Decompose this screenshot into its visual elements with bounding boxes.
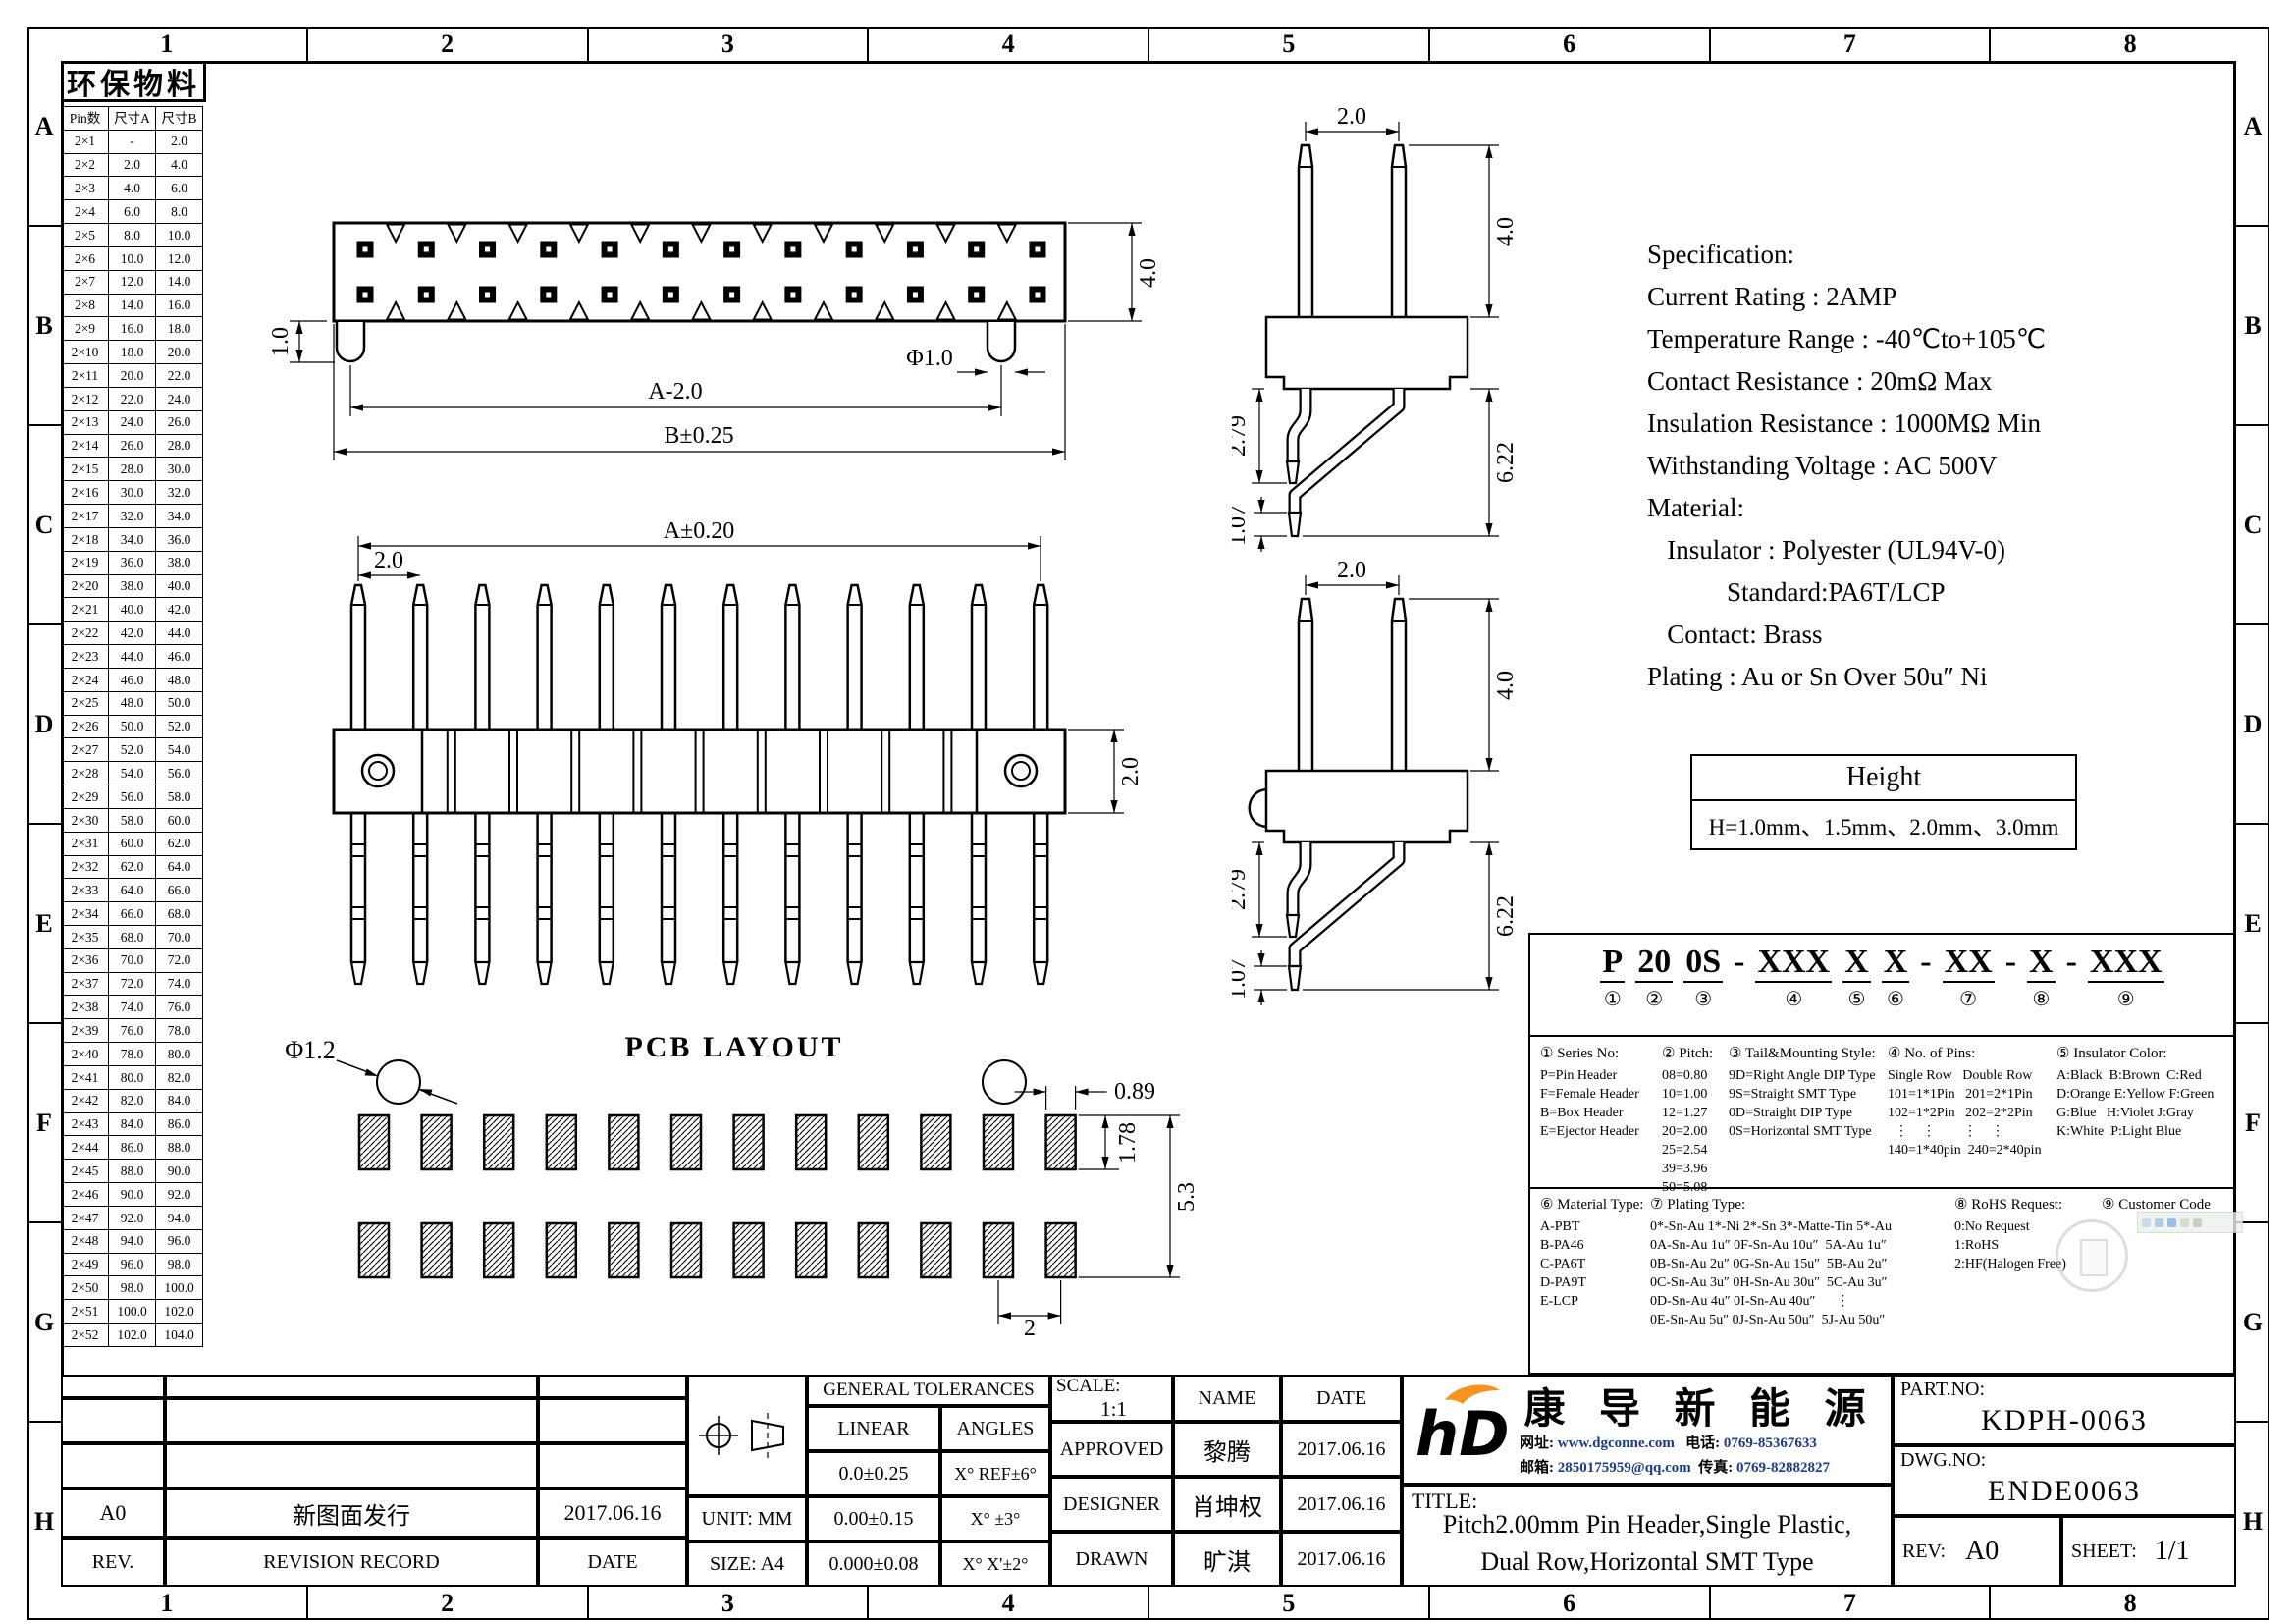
- height-table-title: Height: [1692, 756, 2075, 801]
- grid-ref-label: F: [27, 1024, 61, 1223]
- sheet-cell: SHEET: 1/1: [2061, 1516, 2236, 1587]
- table-row: 2×2650.052.0: [62, 715, 203, 738]
- grid-ref-label: C: [27, 426, 61, 625]
- part-code-segment: XXX⑨: [2088, 943, 2164, 1010]
- unit-label: UNIT: MM: [687, 1496, 807, 1542]
- table-row: 2×4690.092.0: [62, 1183, 203, 1207]
- ordering-info-box: P①20②0S③-XXX④X⑤X⑥-XX⑦-X⑧-XXX⑨ ① Series N…: [1528, 933, 2236, 1375]
- table-row: 2×3262.064.0: [62, 855, 203, 879]
- ordering-section-title: ⑧ RoHS Request:: [1954, 1196, 2098, 1215]
- svg-text:hD: hD: [1415, 1398, 1510, 1470]
- rev-table-cell: [538, 1375, 687, 1398]
- approved-name: 黎腾: [1173, 1422, 1281, 1477]
- table-row: 2×3874.076.0: [62, 996, 203, 1019]
- grid-ref-label: 1: [27, 27, 308, 61]
- table-row: 2×1120.022.0: [62, 364, 203, 388]
- revision-rev: A0: [61, 1489, 165, 1538]
- table-row: 2×1324.026.0: [62, 410, 203, 434]
- table-row: 2×1222.024.0: [62, 387, 203, 410]
- pin-dimension-table: Pin数 尺寸A 尺寸B 2×1-2.02×22.04.02×34.06.02×…: [61, 106, 203, 1347]
- part-code-hyphen: -: [1734, 943, 1744, 981]
- grid-ref-label: 2: [308, 27, 589, 61]
- ordering-section-title: ④ No. of Pins:: [1888, 1045, 2053, 1063]
- table-row: 2×2854.056.0: [62, 762, 203, 785]
- table-row: 2×4384.086.0: [62, 1112, 203, 1136]
- ordering-section-title: ① Series No:: [1540, 1045, 1660, 1063]
- ordering-section: ① Series No:P=Pin HeaderF=Female HeaderB…: [1540, 1045, 1660, 1141]
- approved-date: 2017.06.16: [1281, 1422, 1402, 1477]
- grid-ref-label: 1: [27, 1587, 308, 1620]
- grid-ref-label: 3: [589, 27, 870, 61]
- grid-ref-label: 8: [1991, 27, 2269, 61]
- part-code-hyphen: -: [1920, 943, 1931, 981]
- ordering-section: ④ No. of Pins:Single Row Double Row101=1…: [1888, 1045, 2053, 1160]
- table-row: 2×4792.094.0: [62, 1206, 203, 1229]
- angles-label: ANGLES: [940, 1406, 1050, 1451]
- grid-ref-label: B: [2236, 227, 2269, 426]
- revision-record: 新图面发行: [165, 1489, 538, 1538]
- grid-ref-label: G: [2236, 1223, 2269, 1423]
- designer-name: 肖坤权: [1173, 1477, 1281, 1532]
- part-number-code: P①20②0S③-XXX④X⑤X⑥-XX⑦-X⑧-XXX⑨: [1530, 943, 2234, 1010]
- grid-column-labels-bottom: 12345678: [27, 1587, 2269, 1620]
- company-name: 康 导 新 能 源: [1517, 1380, 1885, 1430]
- ordering-section-title: ⑥ Material Type:: [1540, 1196, 1646, 1215]
- table-row: 2×5098.0100.0: [62, 1276, 203, 1300]
- spec-line: Insulator : Polyester (UL94V-0): [1647, 529, 2046, 571]
- table-row: 2×2344.046.0: [62, 645, 203, 669]
- table-row: 2×1528.030.0: [62, 458, 203, 481]
- spec-line: Contact: Brass: [1647, 614, 2046, 656]
- rev-table-cell: [538, 1443, 687, 1489]
- scale-label: SCALE:: [1056, 1376, 1120, 1397]
- part-code-segment: 20②: [1635, 943, 1673, 1010]
- grid-ref-label: 3: [589, 1587, 870, 1620]
- general-tolerances-label: GENERAL TOLERANCES: [807, 1375, 1050, 1406]
- height-table-value: H=1.0mm、1.5mm、2.0mm、3.0mm: [1692, 801, 2075, 848]
- dim-label: 2.0: [1337, 560, 1366, 583]
- grid-ref-label: B: [27, 227, 61, 426]
- ordering-section-title: ② Pitch:: [1662, 1045, 1727, 1063]
- stamp-artifact: [2137, 1212, 2243, 1233]
- scale-cell: SCALE: 1:1: [1050, 1375, 1173, 1422]
- revision-record-label: REVISION RECORD: [165, 1538, 538, 1587]
- ordering-section: ⑥ Material Type:A-PBTB-PA46C-PA6TD-PA9TE…: [1540, 1196, 1646, 1311]
- part-no-label: PART.NO:: [1900, 1379, 1985, 1401]
- dim-label: Φ1.0: [906, 346, 953, 371]
- grid-ref-label: D: [2236, 625, 2269, 825]
- grid-row-labels-right: ABCDEFGH: [2236, 27, 2269, 1620]
- table-row: 2×3976.078.0: [62, 1019, 203, 1043]
- grid-column-labels-top: 12345678: [27, 27, 2269, 61]
- part-code-segment: XXX④: [1755, 943, 1832, 1010]
- grid-ref-label: 5: [1149, 1587, 1430, 1620]
- divider: [1530, 1035, 2234, 1037]
- table-row: 2×4996.098.0: [62, 1253, 203, 1276]
- revision-date: 2017.06.16: [538, 1489, 687, 1538]
- dim-label: A±0.20: [664, 518, 735, 544]
- dim-label: 4.0: [1493, 671, 1519, 700]
- table-row: 2×2956.058.0: [62, 785, 203, 809]
- dim-label: 4.0: [1493, 217, 1519, 246]
- rev-value: A0: [1965, 1536, 1999, 1567]
- sheet-value: 1/1: [2155, 1536, 2190, 1567]
- grid-ref-label: D: [27, 625, 61, 825]
- sheet-label: SHEET:: [2071, 1541, 2137, 1563]
- table-row: 2×1630.032.0: [62, 481, 203, 505]
- table-row: 2×1834.036.0: [62, 527, 203, 551]
- grid-ref-label: A: [2236, 27, 2269, 227]
- table-row: 2×4486.088.0: [62, 1136, 203, 1160]
- spec-line: Contact Resistance : 20mΩ Max: [1647, 360, 2046, 403]
- dim-label: 2.79: [1232, 415, 1251, 457]
- drawing-title-line1: Pitch2.00mm Pin Header,Single Plastic,: [1402, 1510, 1893, 1540]
- table-row: 2×916.018.0: [62, 317, 203, 341]
- dim-label: 2.0: [374, 548, 403, 573]
- designer-date: 2017.06.16: [1281, 1477, 1402, 1532]
- dim-label: 6.22: [1493, 895, 1519, 937]
- rev-table-cell: [538, 1398, 687, 1443]
- table-row: 2×22.04.0: [62, 153, 203, 177]
- tolerance-linear-1: 0.0±0.25: [807, 1451, 940, 1496]
- date-column-label: DATE: [1281, 1375, 1402, 1422]
- dim-label: Φ1.2: [285, 1036, 336, 1064]
- spec-line: Temperature Range : -40℃to+105℃: [1647, 318, 2046, 360]
- drawing-title-line2: Dual Row,Horizontal SMT Type: [1402, 1547, 1893, 1577]
- dim-label: A-2.0: [648, 379, 702, 405]
- table-row: 2×610.012.0: [62, 246, 203, 270]
- ordering-section-title: ⑦ Plating Type:: [1650, 1196, 1950, 1215]
- ordering-section: ⑦ Plating Type:0*-Sn-Au 1*-Ni 2*-Sn 3*-M…: [1650, 1196, 1950, 1329]
- grid-ref-label: C: [2236, 426, 2269, 625]
- table-row: 2×4894.096.0: [62, 1229, 203, 1253]
- grid-ref-label: 4: [869, 27, 1149, 61]
- tolerance-angle-1: X° REF±6°: [940, 1451, 1050, 1496]
- front-view-drawing: A±0.20 2.0 2.0: [221, 518, 1261, 1009]
- table-row: 2×46.08.0: [62, 200, 203, 224]
- top-view-drawing: 1.0 A-2.0 B±0.25 Φ1.0 4.0: [221, 130, 1217, 468]
- customer-stamp: [2056, 1219, 2128, 1292]
- scale-value: 1:1: [1100, 1397, 1127, 1422]
- table-row: 2×34.06.0: [62, 177, 203, 200]
- spec-line: Plating : Au or Sn Over 50u″ Ni: [1647, 656, 2046, 698]
- table-row: 2×712.014.0: [62, 270, 203, 294]
- table-row: 2×3670.072.0: [62, 948, 203, 972]
- grid-ref-label: 2: [308, 1587, 589, 1620]
- name-column-label: NAME: [1173, 1375, 1281, 1422]
- table-row: 2×4180.082.0: [62, 1065, 203, 1089]
- contact-line-2: 邮箱: 2850175959@qq.com 传真: 0769-82882827: [1520, 1456, 1888, 1481]
- ordering-section: ② Pitch:08=0.8010=1.0012=1.2720=2.0025=2…: [1662, 1045, 1727, 1197]
- rev-cell: REV: A0: [1893, 1516, 2061, 1587]
- grid-ref-label: A: [27, 27, 61, 227]
- drawing-sheet: 12345678 12345678 ABCDEFGH ABCDEFGH 环保物料…: [0, 0, 2296, 1624]
- table-row: 2×2752.054.0: [62, 738, 203, 762]
- dim-label: 1.0: [268, 327, 294, 356]
- table-row: 2×51100.0102.0: [62, 1300, 203, 1324]
- rev-table-cell: [61, 1443, 165, 1489]
- table-row: 2×3058.060.0: [62, 808, 203, 832]
- pin-table-header: Pin数 尺寸A 尺寸B: [62, 107, 203, 131]
- ordering-section: ③ Tail&Mounting Style:9D=Right Angle DIP…: [1729, 1045, 1886, 1141]
- grid-ref-label: F: [2236, 1024, 2269, 1223]
- grid-ref-label: G: [27, 1223, 61, 1423]
- dim-label: 5.3: [1174, 1182, 1200, 1212]
- table-row: 2×58.010.0: [62, 224, 203, 247]
- rev-table-cell: [165, 1398, 538, 1443]
- rev-table-cell: [165, 1375, 538, 1398]
- table-row: 2×1732.034.0: [62, 505, 203, 528]
- height-table: Height H=1.0mm、1.5mm、2.0mm、3.0mm: [1690, 754, 2077, 850]
- dwg-no-value: ENDE0063: [1893, 1475, 2236, 1508]
- company-contacts: 网址: www.dgconne.com 电话: 0769-85367633 邮箱…: [1520, 1432, 1888, 1481]
- drawn-label: DRAWN: [1050, 1532, 1173, 1587]
- grid-ref-label: 6: [1430, 1587, 1711, 1620]
- spec-line: Insulation Resistance : 1000MΩ Min: [1647, 403, 2046, 445]
- pcb-layout-drawing: Φ1.2 PCB LAYOUT 0.89 1.78 5.3 2: [263, 1000, 1205, 1338]
- table-row: 2×2140.042.0: [62, 598, 203, 622]
- table-row: 2×3568.070.0: [62, 925, 203, 948]
- spec-line: Withstanding Voltage : AC 500V: [1647, 445, 2046, 487]
- table-row: 2×2446.048.0: [62, 668, 203, 691]
- spec-line: Material:: [1647, 487, 2046, 529]
- table-row: 2×4078.080.0: [62, 1043, 203, 1066]
- grid-ref-label: E: [2236, 825, 2269, 1024]
- dwg-no-label: DWG.NO:: [1900, 1449, 1986, 1472]
- tolerance-linear-2: 0.00±0.15: [807, 1496, 940, 1542]
- specification-text: Specification:Current Rating : 2AMPTempe…: [1647, 234, 2046, 698]
- contact-line-1: 网址: www.dgconne.com 电话: 0769-85367633: [1520, 1432, 1888, 1456]
- dim-label: 2: [1024, 1316, 1036, 1338]
- dim-label: B±0.25: [664, 423, 733, 449]
- projection-symbol-cell: [687, 1375, 807, 1496]
- drawn-name: 旷淇: [1173, 1532, 1281, 1587]
- table-row: 2×4588.090.0: [62, 1160, 203, 1183]
- part-code-segment: X⑧: [2027, 943, 2056, 1010]
- approved-label: APPROVED: [1050, 1422, 1173, 1477]
- tolerance-linear-3: 0.000±0.08: [807, 1542, 940, 1587]
- table-row: 2×2038.040.0: [62, 574, 203, 598]
- tolerance-angle-2: X° ±3°: [940, 1496, 1050, 1542]
- grid-ref-label: 7: [1711, 27, 1992, 61]
- grid-ref-label: H: [27, 1423, 61, 1620]
- company-logo: hD: [1412, 1380, 1510, 1475]
- part-code-hyphen: -: [2005, 943, 2016, 981]
- table-row: 2×814.016.0: [62, 294, 203, 317]
- table-row: 2×3364.066.0: [62, 879, 203, 902]
- table-row: 2×4282.084.0: [62, 1089, 203, 1112]
- table-row: 2×3466.068.0: [62, 902, 203, 926]
- grid-ref-label: 8: [1991, 1587, 2269, 1620]
- table-row: 2×52102.0104.0: [62, 1324, 203, 1347]
- part-code-segment: 0S③: [1683, 943, 1723, 1010]
- spec-line: Specification:: [1647, 234, 2046, 276]
- size-label: SIZE: A4: [687, 1542, 807, 1587]
- dim-label: 0.89: [1114, 1079, 1155, 1105]
- ordering-section-title: ⑤ Insulator Color:: [2056, 1045, 2233, 1063]
- part-code-segment: X⑥: [1882, 943, 1910, 1010]
- dim-label: 2.0: [1118, 757, 1144, 786]
- rev-table-cell: [61, 1398, 165, 1443]
- rev-label: REV:: [1902, 1541, 1946, 1563]
- drawn-date: 2017.06.16: [1281, 1532, 1402, 1587]
- rev-table-cell: [165, 1443, 538, 1489]
- tolerance-angle-3: X° X'±2°: [940, 1542, 1050, 1587]
- rev-header-label: REV.: [61, 1538, 165, 1587]
- grid-ref-label: E: [27, 825, 61, 1024]
- grid-ref-label: 6: [1430, 27, 1711, 61]
- date-label: DATE: [538, 1538, 687, 1587]
- ordering-section: ⑤ Insulator Color:A:Black B:Brown C:RedD…: [2056, 1045, 2233, 1141]
- table-row: 2×1936.038.0: [62, 551, 203, 574]
- divider: [1530, 1187, 2234, 1189]
- table-row: 2×2548.050.0: [62, 691, 203, 715]
- table-row: 2×2242.044.0: [62, 622, 203, 645]
- part-code-segment: X⑤: [1842, 943, 1871, 1010]
- table-row: 2×1426.028.0: [62, 434, 203, 458]
- eco-material-label: 环保物料: [61, 61, 206, 102]
- grid-ref-label: 5: [1149, 27, 1430, 61]
- part-code-segment: P①: [1600, 943, 1625, 1010]
- spec-line: Standard:PA6T/LCP: [1647, 571, 2046, 614]
- dim-label: 2.0: [1337, 106, 1366, 130]
- linear-label: LINEAR: [807, 1406, 940, 1451]
- side-view-drawing-top: 2.0 4.0 2.79 6.22 1.07: [1232, 106, 1526, 558]
- pcb-layout-title: PCB LAYOUT: [624, 1031, 843, 1063]
- grid-row-labels-left: ABCDEFGH: [27, 27, 61, 1620]
- part-code-hyphen: -: [2066, 943, 2077, 981]
- designer-label: DESIGNER: [1050, 1477, 1173, 1532]
- spec-line: Current Rating : 2AMP: [1647, 276, 2046, 318]
- table-row: 2×3160.062.0: [62, 832, 203, 855]
- dim-label: 4.0: [1136, 258, 1161, 288]
- grid-ref-label: H: [2236, 1423, 2269, 1620]
- part-no-value: KDPH-0063: [1893, 1404, 2236, 1437]
- grid-ref-label: 4: [869, 1587, 1149, 1620]
- ordering-section-title: ③ Tail&Mounting Style:: [1729, 1045, 1886, 1063]
- rev-table-cell: [61, 1375, 165, 1398]
- table-row: 2×3772.074.0: [62, 972, 203, 996]
- grid-ref-label: 7: [1711, 1587, 1992, 1620]
- part-code-segment: XX⑦: [1943, 943, 1995, 1010]
- projection-symbol-icon: [693, 1405, 801, 1466]
- table-row: 2×1018.020.0: [62, 341, 203, 364]
- table-row: 2×1-2.0: [62, 130, 203, 153]
- side-view-drawing-bottom: 2.0 4.0 2.79 6.22 1.07: [1232, 560, 1526, 1011]
- dim-label: 1.78: [1115, 1122, 1141, 1164]
- dim-label: 6.22: [1493, 442, 1519, 483]
